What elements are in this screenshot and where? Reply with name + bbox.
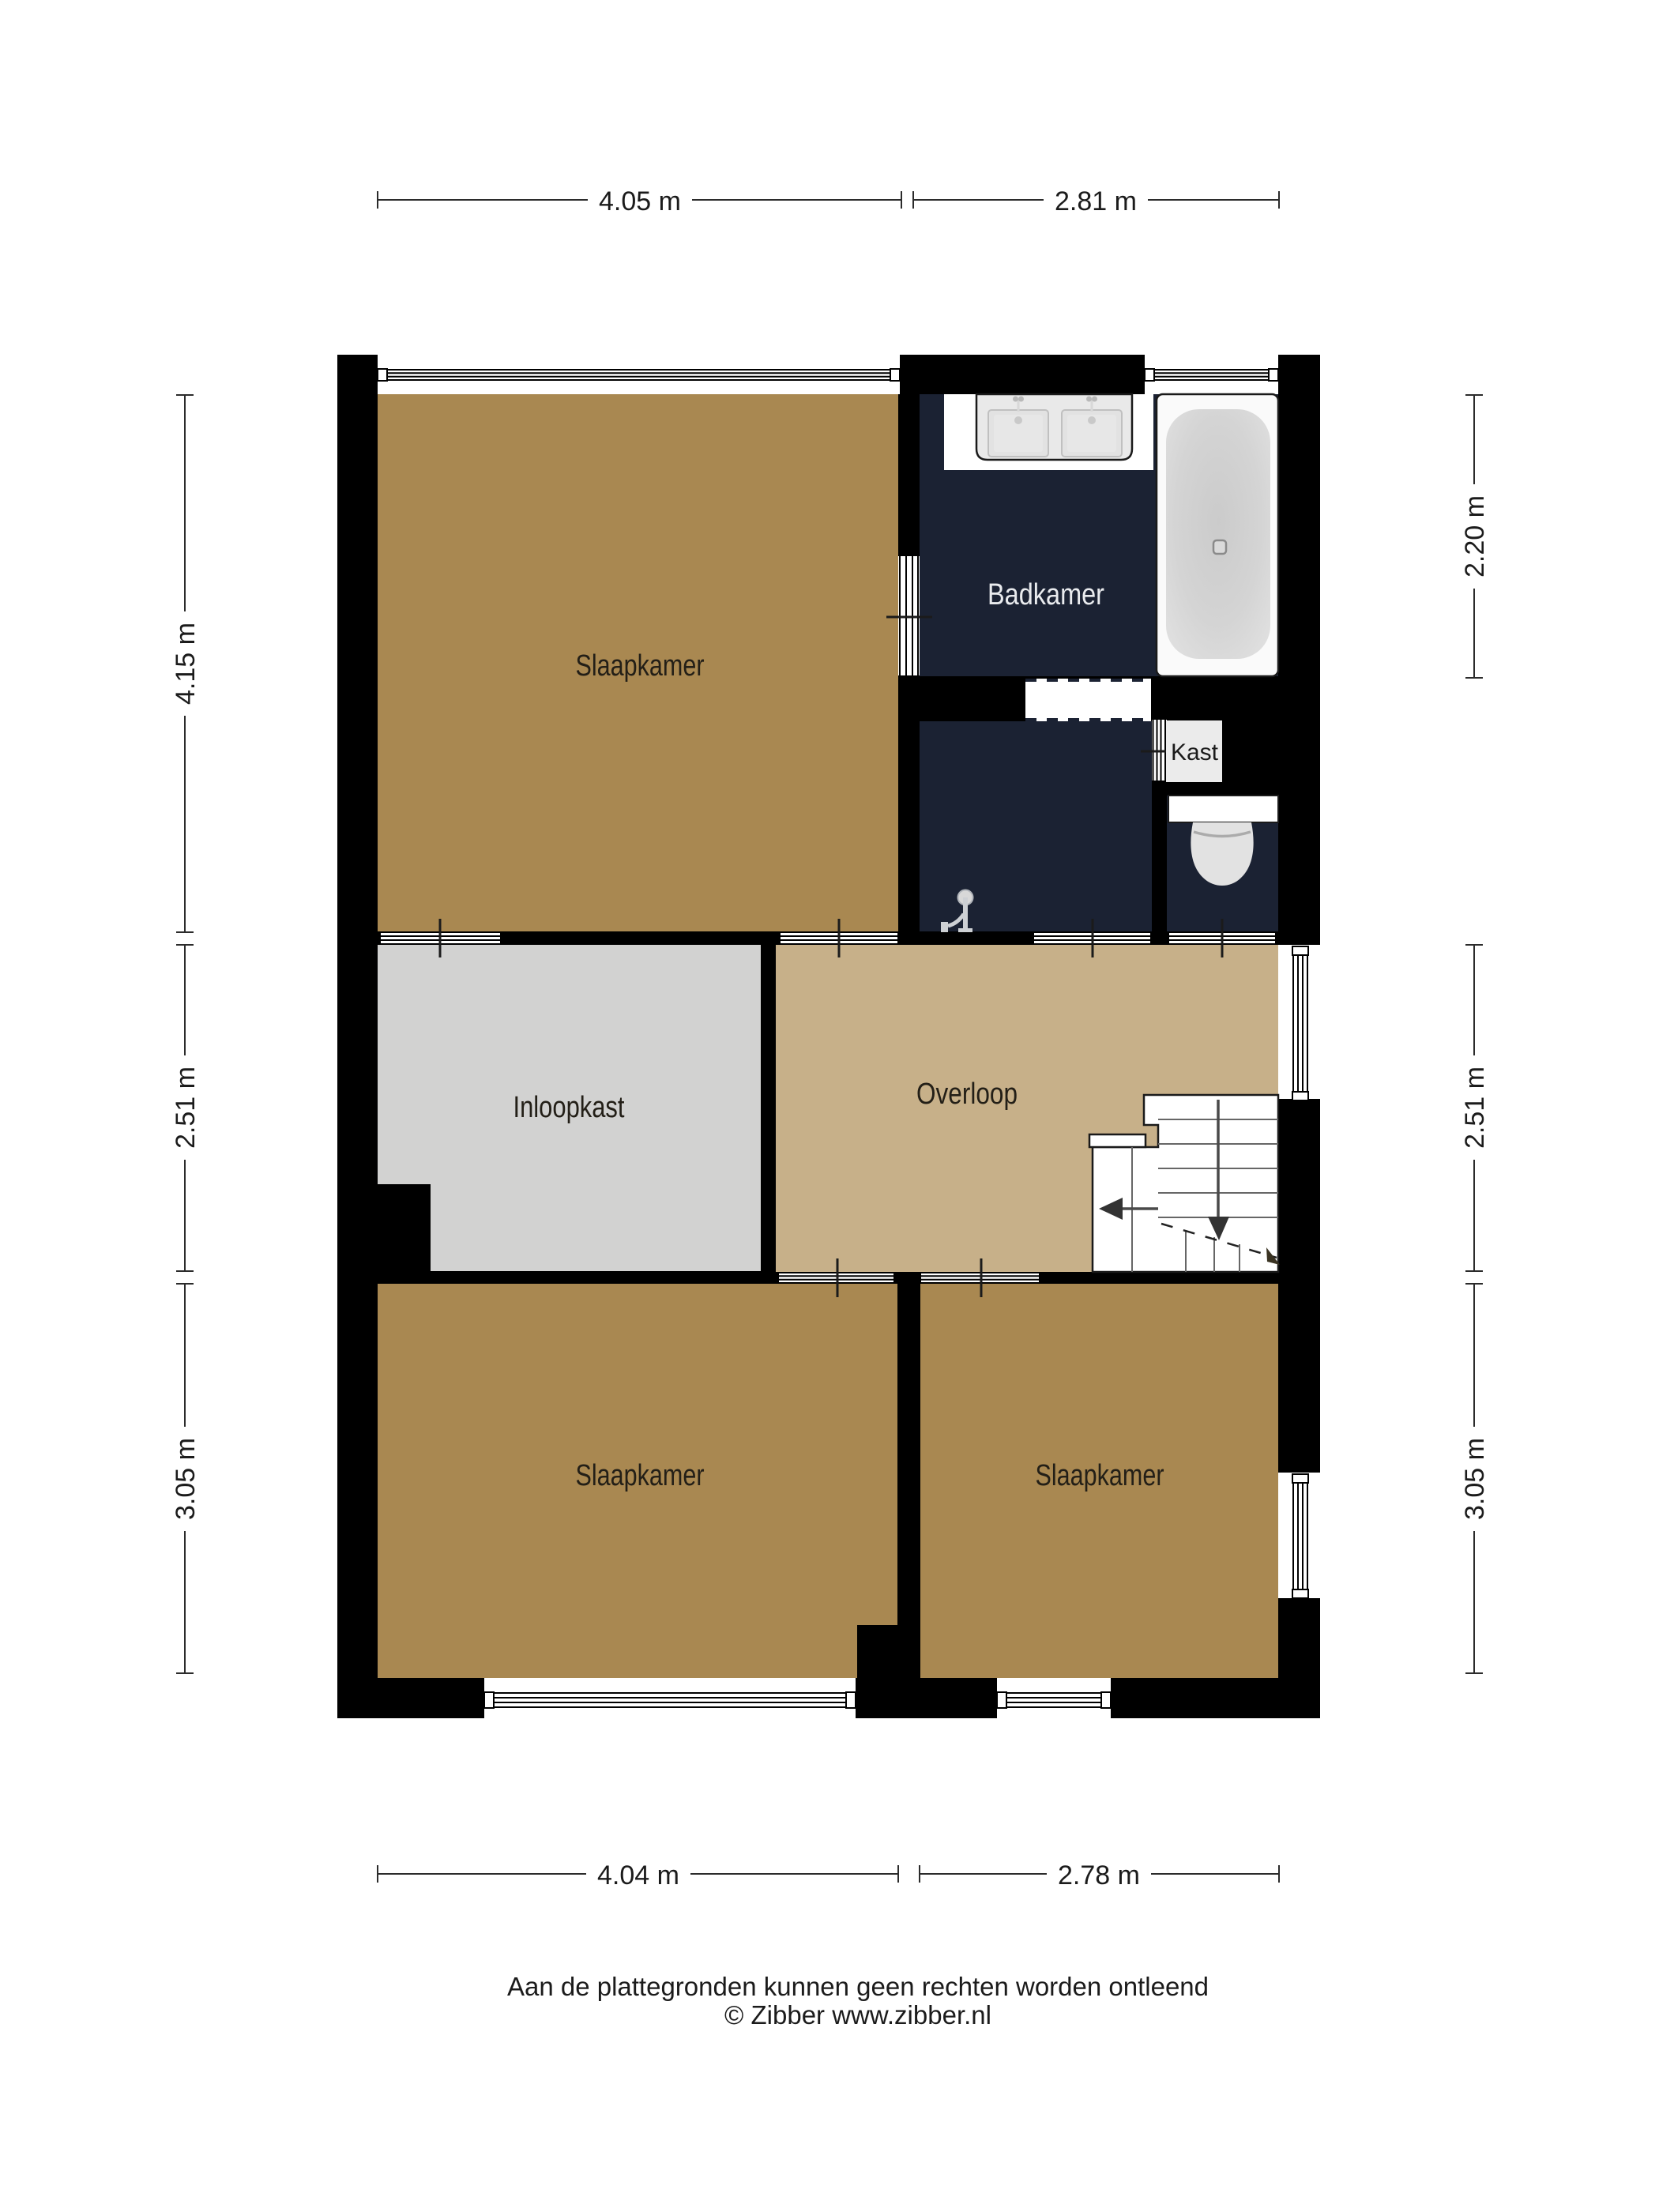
svg-text:Slaapkamer: Slaapkamer bbox=[1036, 1459, 1164, 1492]
svg-text:2.20 m: 2.20 m bbox=[1460, 495, 1490, 577]
svg-text:Kast: Kast bbox=[1171, 739, 1219, 766]
svg-text:© Zibber www.zibber.nl: © Zibber www.zibber.nl bbox=[724, 2000, 991, 2030]
svg-text:4.05 m: 4.05 m bbox=[599, 186, 681, 216]
svg-text:Slaapkamer: Slaapkamer bbox=[576, 1459, 705, 1492]
svg-text:Inloopkast: Inloopkast bbox=[513, 1091, 625, 1124]
svg-text:3.05 m: 3.05 m bbox=[1460, 1438, 1490, 1520]
svg-text:2.81 m: 2.81 m bbox=[1055, 186, 1137, 216]
svg-text:2.51 m: 2.51 m bbox=[171, 1066, 201, 1149]
svg-text:2.78 m: 2.78 m bbox=[1058, 1860, 1140, 1890]
svg-text:3.05 m: 3.05 m bbox=[171, 1438, 201, 1520]
svg-text:4.15 m: 4.15 m bbox=[171, 623, 201, 705]
svg-text:2.51 m: 2.51 m bbox=[1460, 1066, 1490, 1149]
svg-text:Aan de plattegronden kunnen ge: Aan de plattegronden kunnen geen rechten… bbox=[507, 1972, 1209, 2001]
svg-text:Overloop: Overloop bbox=[916, 1078, 1018, 1111]
svg-text:Slaapkamer: Slaapkamer bbox=[576, 649, 705, 683]
svg-text:4.04 m: 4.04 m bbox=[597, 1860, 679, 1890]
svg-text:Badkamer: Badkamer bbox=[987, 578, 1104, 611]
